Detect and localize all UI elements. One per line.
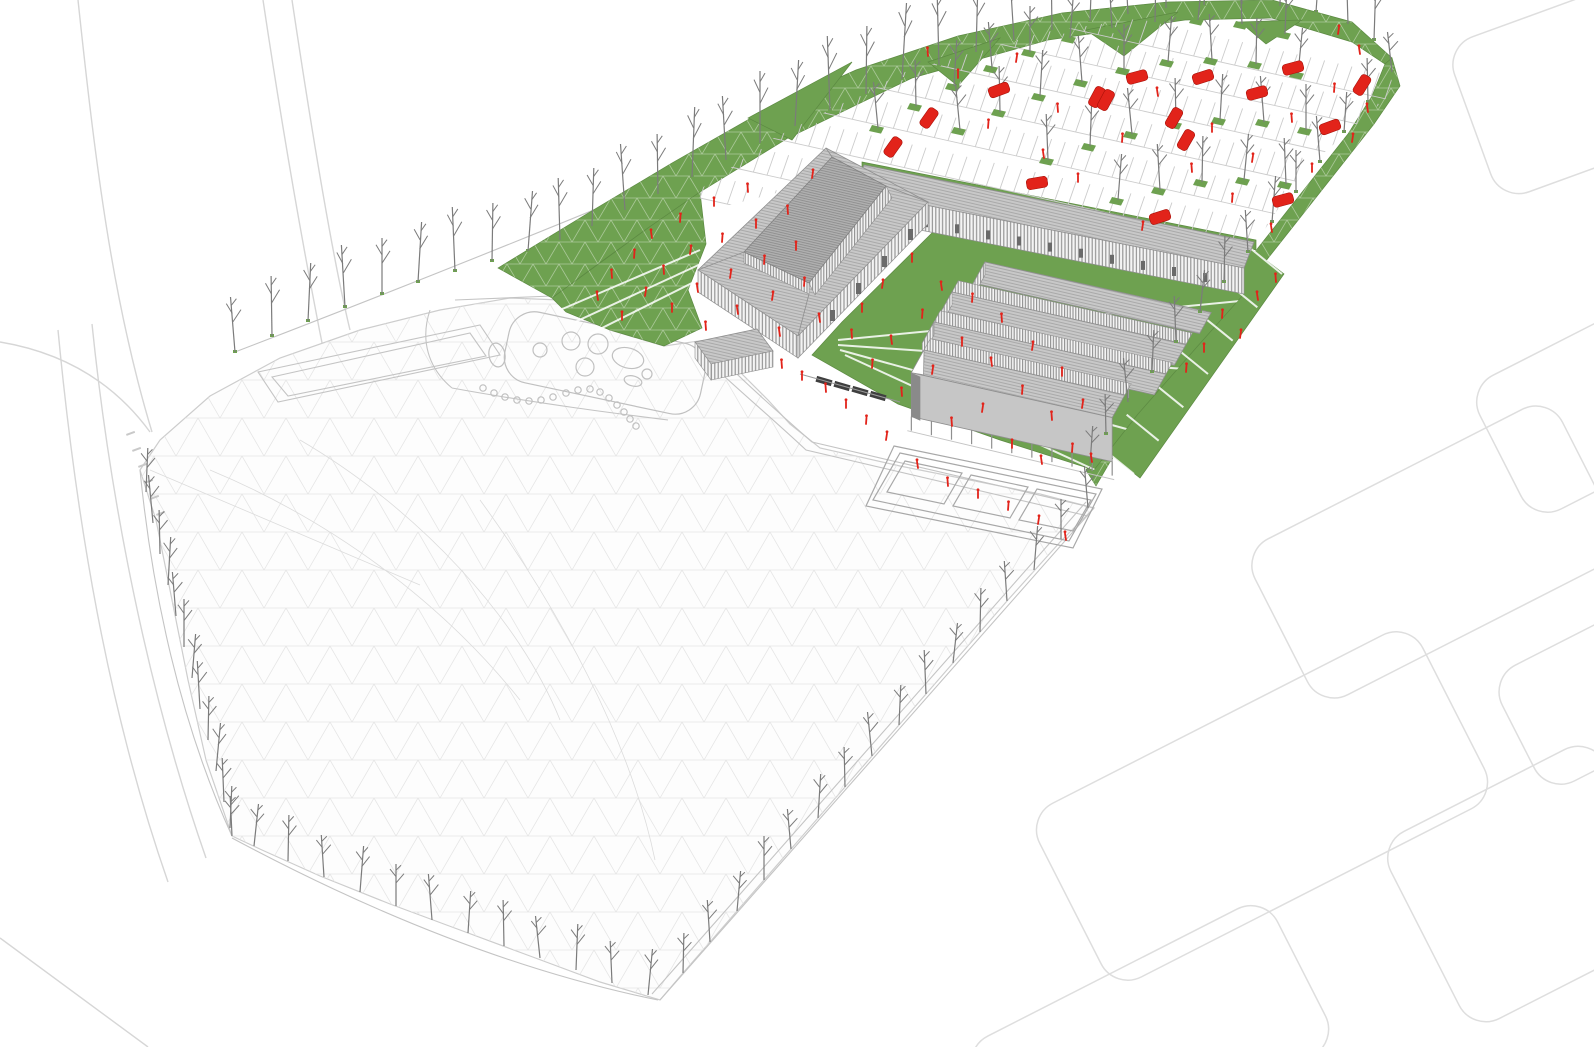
parking-stall-divider	[1153, 90, 1161, 113]
tree-pit	[951, 127, 966, 136]
person-body	[1271, 226, 1272, 233]
parking-stall-divider	[904, 145, 912, 168]
tree-branch	[1296, 160, 1304, 169]
hall-door	[830, 310, 835, 321]
person-figure	[1121, 132, 1124, 142]
parking-stall-divider	[1267, 152, 1275, 175]
person-head	[633, 248, 636, 251]
parking-stall-divider	[1137, 196, 1145, 219]
person-head	[1190, 162, 1193, 165]
parking-stall-divider	[1007, 94, 1015, 117]
tree-branch	[382, 240, 387, 247]
parking-stall-divider	[932, 151, 940, 174]
person-body	[651, 232, 652, 239]
parking-stall-divider	[1274, 303, 1282, 326]
person-head	[1240, 328, 1243, 331]
tree	[1290, 150, 1304, 193]
person-head	[818, 312, 821, 315]
car	[918, 106, 939, 130]
parking-stall-divider	[1288, 86, 1296, 109]
parking-stall-divider	[1314, 236, 1322, 259]
person-body	[645, 290, 646, 297]
parking-stall-divider	[1275, 82, 1283, 105]
person-body	[634, 252, 635, 259]
parking-stall-divider	[866, 99, 874, 122]
parking-stall-divider	[1068, 181, 1076, 204]
road-line	[0, 342, 150, 432]
tree-branch	[623, 159, 631, 174]
wing-door	[1141, 261, 1145, 270]
person-head	[596, 290, 599, 293]
person-head	[1311, 162, 1314, 165]
parking-stall-divider	[1167, 166, 1175, 189]
tree-branch	[1079, 37, 1084, 43]
parking-stall-divider	[1426, 85, 1434, 108]
tree	[1277, 138, 1293, 190]
person-head	[801, 370, 804, 373]
parking-stall-divider	[1071, 145, 1079, 168]
parking-stall-divider	[1016, 0, 1024, 16]
person-head	[940, 280, 943, 283]
parking-stall-divider	[1171, 130, 1179, 153]
person-body	[730, 272, 731, 279]
car	[1245, 85, 1268, 101]
tree-branch	[587, 175, 593, 185]
parking-stall-divider	[1126, 157, 1134, 180]
tree-branch	[829, 53, 837, 69]
person-body	[764, 258, 765, 265]
person-head	[982, 402, 985, 405]
car	[1191, 69, 1214, 86]
parking-stall-divider	[893, 105, 901, 128]
parking-stall-divider	[1385, 142, 1393, 165]
tree-pit	[1109, 197, 1124, 206]
tree-branch	[760, 73, 765, 82]
person-body	[597, 294, 598, 301]
tree-trunk	[1260, 76, 1264, 122]
parking-stall-divider	[980, 88, 988, 111]
car	[987, 81, 1010, 99]
wing-door	[1079, 249, 1083, 258]
parking-stall-divider	[1467, 160, 1475, 183]
parking-stall-divider	[1507, 134, 1515, 157]
parking-stall-divider	[939, 78, 947, 101]
parking-stall-divider	[836, 129, 844, 152]
tree-branch	[453, 209, 458, 217]
person-head	[803, 276, 806, 279]
parking-stall-divider	[1208, 176, 1216, 199]
parking-stall-divider	[1534, 140, 1542, 163]
tree-branch	[1285, 139, 1290, 145]
parking-stall-divider	[1220, 70, 1228, 93]
person-body	[1043, 152, 1044, 159]
person-head	[610, 268, 613, 271]
parking-stall-divider	[1180, 30, 1188, 53]
pavilion-building	[695, 329, 773, 380]
parking-stall-divider	[1385, 215, 1393, 238]
parking-stall-divider	[1234, 73, 1242, 96]
tree-branch	[1216, 80, 1222, 88]
parking-stall-divider	[1466, 125, 1474, 148]
person-head	[911, 252, 914, 255]
person-body	[1122, 136, 1123, 143]
parking-stall-divider	[948, 0, 956, 1]
person-body	[1222, 312, 1223, 319]
person-head	[778, 326, 781, 329]
tree-branch	[376, 245, 382, 255]
road-line	[0, 938, 148, 1047]
parking-stall-divider	[1098, 151, 1106, 174]
parking-stall-divider	[1331, 203, 1339, 226]
person-head	[1221, 308, 1224, 311]
person-head	[650, 228, 653, 231]
parking-stall-divider	[1179, 61, 1187, 84]
person-head	[786, 204, 789, 207]
parking-stall-divider	[1424, 261, 1432, 284]
tree-branch	[1169, 84, 1175, 92]
tree-branch	[1246, 211, 1251, 216]
person-body	[928, 50, 929, 57]
parking-stall-divider	[1301, 233, 1309, 256]
parking-stall-divider	[1453, 157, 1461, 180]
person-head	[1338, 24, 1341, 27]
parking-stall-divider	[1349, 170, 1357, 193]
parking-stall-divider	[1062, 106, 1070, 129]
tree-branch	[1375, 0, 1383, 9]
parking-stall-divider	[1139, 87, 1147, 110]
tree-branch	[1066, 0, 1072, 6]
tree	[1297, 84, 1314, 136]
city-block	[1242, 396, 1594, 709]
road-line	[78, 0, 152, 432]
city-block	[1445, 0, 1594, 202]
parking-stall-divider	[1212, 140, 1220, 163]
parking-stall-divider	[1370, 325, 1378, 348]
parking-stall-divider	[1235, 108, 1243, 131]
tree-pit	[1277, 181, 1292, 190]
parking-stall-divider	[1303, 124, 1311, 147]
person-head	[957, 68, 960, 71]
person-figure	[1190, 162, 1193, 172]
tree-branch	[958, 95, 966, 105]
parking-stall-divider	[1002, 0, 1010, 13]
parking-stall-divider	[1439, 119, 1447, 142]
person-head	[1211, 122, 1214, 125]
tree-branch	[861, 34, 867, 46]
person-body	[1091, 456, 1092, 463]
tree-branch	[342, 247, 347, 254]
parking-stall-divider	[1328, 239, 1336, 262]
parking-stall-divider	[1235, 182, 1243, 205]
hall-door	[908, 229, 913, 240]
parking-stall-divider	[1454, 231, 1462, 254]
person-head	[1011, 438, 1014, 441]
parking-stall-divider	[1399, 79, 1407, 102]
road-line	[292, 0, 350, 330]
parking-stall-divider	[1327, 277, 1335, 300]
parking-stall-divider	[907, 108, 915, 131]
parking-stall-divider	[1440, 88, 1448, 111]
person-head	[1256, 290, 1259, 293]
tree-branch	[454, 222, 462, 236]
person-head	[679, 212, 682, 215]
person-head	[1290, 112, 1293, 115]
car	[1318, 118, 1341, 136]
person-figure	[1211, 122, 1214, 132]
person-head	[1156, 86, 1159, 89]
person-body	[1292, 116, 1293, 123]
tree-branch	[1388, 33, 1393, 38]
parking-stall-divider	[727, 181, 735, 204]
parking-stall-divider	[1355, 245, 1363, 268]
parking-stall-divider	[892, 0, 900, 20]
tree-branch	[1295, 34, 1301, 42]
person-body	[932, 368, 933, 375]
parking-stall-divider	[767, 152, 775, 175]
person-body	[1016, 56, 1017, 63]
parking-stall-divider	[1411, 113, 1419, 136]
person-head	[1040, 454, 1043, 457]
city-block	[1377, 736, 1594, 1032]
parking-stall-divider	[960, 12, 968, 35]
tree-branch	[971, 0, 977, 7]
tree-pit	[1081, 143, 1096, 152]
person-body	[782, 362, 783, 369]
tree-branch	[1300, 90, 1306, 98]
parking-stall-divider	[925, 75, 933, 98]
parking-stall-divider	[1363, 173, 1371, 196]
person-body	[1232, 196, 1233, 203]
tree-branch	[791, 68, 797, 80]
parking-stall-divider	[1043, 66, 1051, 89]
parking-stall-divider	[947, 9, 955, 32]
person-head	[1042, 148, 1045, 151]
person-figure	[865, 414, 868, 424]
parking-stall-divider	[781, 155, 789, 178]
parking-stall-divider	[1262, 48, 1270, 71]
tree-branch	[1340, 97, 1346, 104]
parking-stall-divider	[1369, 248, 1377, 271]
tree	[1123, 88, 1138, 140]
person-head	[736, 304, 739, 307]
person-figure	[696, 282, 699, 292]
tree-branch	[1247, 220, 1255, 229]
tree-branch	[1361, 63, 1367, 71]
parking-stall-divider	[863, 135, 871, 158]
person-body	[680, 216, 681, 223]
person-head	[1061, 366, 1064, 369]
person-figure	[780, 358, 783, 368]
parking-stall-divider	[1344, 67, 1352, 90]
person-body	[779, 330, 780, 337]
person-head	[1071, 442, 1074, 445]
parking-stall-divider	[1576, 118, 1584, 141]
wing-door	[955, 224, 959, 233]
tree-branch	[559, 180, 564, 187]
tree	[1211, 74, 1229, 126]
parking-stall-divider	[880, 102, 888, 125]
person-body	[1038, 518, 1039, 525]
tree-branch	[723, 98, 728, 106]
person-head	[671, 302, 674, 305]
tree	[376, 238, 390, 295]
parking-stall-divider	[1535, 109, 1543, 132]
parking-stall-divider	[1226, 143, 1234, 166]
person-body	[1338, 28, 1339, 35]
person-figure	[1290, 112, 1293, 122]
person-body	[1276, 276, 1277, 283]
person-head	[865, 414, 868, 417]
tree	[1031, 50, 1049, 102]
person-head	[1021, 384, 1024, 387]
wing-door	[1110, 255, 1114, 264]
person-head	[1358, 44, 1361, 47]
person-body	[812, 172, 813, 179]
tree-branch	[1030, 7, 1035, 13]
parking-stall-divider	[1329, 315, 1337, 338]
tree-branch	[867, 28, 872, 36]
person-head	[946, 476, 949, 479]
tree-trunk	[231, 297, 236, 352]
person-head	[845, 398, 848, 401]
person-figure	[1311, 162, 1314, 172]
tree-branch	[724, 111, 732, 125]
person-body	[1065, 534, 1066, 541]
parking-stall-divider	[1315, 312, 1323, 335]
tree-branch	[382, 251, 390, 263]
person-body	[1002, 316, 1003, 323]
person-head	[1352, 132, 1355, 135]
person-body	[952, 420, 953, 427]
hall-door	[882, 256, 887, 267]
tree	[414, 222, 427, 283]
parking-stall-divider	[1342, 318, 1350, 341]
person-figure	[824, 382, 827, 392]
parking-stall-divider	[1249, 185, 1257, 208]
parking-stall-divider	[1343, 98, 1351, 121]
parking-stall-divider	[1396, 254, 1404, 277]
parking-stall-divider	[1289, 121, 1297, 144]
person-body	[1352, 136, 1353, 143]
parking-stall-divider	[1368, 286, 1376, 309]
parking-stall-divider	[1481, 97, 1489, 120]
tree-branch	[657, 136, 662, 143]
tree-branch	[1261, 77, 1266, 83]
car	[882, 135, 903, 159]
tree-branch	[1202, 147, 1210, 157]
tree-trunk	[452, 207, 455, 271]
person-figure	[845, 398, 848, 408]
parking-stall-divider	[1329, 95, 1337, 118]
parking-stall-divider	[1548, 143, 1556, 166]
parking-stall-divider	[1194, 99, 1202, 122]
parking-stall-divider	[959, 157, 967, 180]
tree-branch	[1176, 89, 1184, 99]
tree-branch	[899, 12, 905, 26]
person-head	[977, 488, 980, 491]
wing-door	[986, 230, 990, 239]
person-head	[871, 358, 874, 361]
person-head	[1270, 222, 1273, 225]
person-body	[1240, 332, 1241, 339]
parking-stall-divider	[1253, 149, 1261, 172]
person-body	[819, 316, 820, 323]
city-block	[1489, 601, 1594, 794]
person-head	[921, 308, 924, 311]
parking-stall-divider	[1286, 268, 1294, 291]
person-head	[1064, 530, 1067, 533]
parking-stall-divider	[945, 154, 953, 177]
parking-stall-divider	[989, 0, 997, 10]
person-head	[1056, 102, 1059, 105]
person-body	[788, 208, 789, 215]
person-figure	[1077, 172, 1080, 182]
parking-stall-divider	[986, 163, 994, 186]
person-body	[1041, 458, 1042, 465]
parking-stall-divider	[966, 85, 974, 108]
person-head	[971, 292, 974, 295]
parking-stall-divider	[1235, 42, 1243, 65]
person-body	[737, 308, 738, 315]
tree-trunk	[1316, 116, 1320, 162]
parking-stall-divider	[1563, 115, 1571, 138]
parking-stall-divider	[1376, 176, 1384, 199]
parking-stall-divider	[1382, 289, 1390, 312]
parking-stall-divider	[852, 23, 860, 46]
person-head	[690, 244, 693, 247]
parking-stall-divider	[1276, 118, 1284, 141]
parking-stall-divider	[1014, 169, 1022, 192]
person-body	[922, 312, 923, 319]
parking-stall-divider	[961, 0, 969, 4]
tree-branch	[621, 146, 626, 154]
person-head	[926, 46, 929, 49]
tree-branch	[1290, 155, 1296, 163]
parking-stall-divider	[877, 138, 885, 161]
person-head	[662, 264, 665, 267]
parking-stall-divider	[1396, 293, 1404, 316]
wing-door	[1017, 237, 1021, 246]
parking-stall-divider	[919, 3, 927, 26]
person-head	[621, 310, 624, 313]
person-body	[690, 248, 691, 255]
parking-stall-divider	[1413, 221, 1421, 244]
person-head	[755, 218, 758, 221]
tree-branch	[1306, 85, 1311, 91]
parking-stall-divider	[1399, 218, 1407, 241]
person-figure	[1231, 192, 1234, 202]
parking-stall-divider	[1288, 306, 1296, 329]
parking-stall-divider	[1117, 118, 1125, 141]
person-head	[772, 290, 775, 293]
person-body	[1032, 344, 1033, 351]
person-head	[1142, 220, 1145, 223]
tree-branch	[866, 42, 874, 57]
parking-green-triangle	[1240, 20, 1302, 44]
hall-door	[856, 283, 861, 294]
parking-stall-divider	[1404, 182, 1412, 205]
tree-pit	[1039, 157, 1054, 166]
person-body	[1192, 166, 1193, 173]
tree-branch	[1024, 12, 1030, 20]
car	[1164, 106, 1184, 130]
person-body	[872, 362, 873, 369]
tree-pit	[983, 65, 998, 74]
tree-branch	[1197, 142, 1203, 150]
parking-stall-divider	[1410, 257, 1418, 280]
person-body	[891, 338, 892, 345]
person-figure	[1042, 148, 1045, 158]
